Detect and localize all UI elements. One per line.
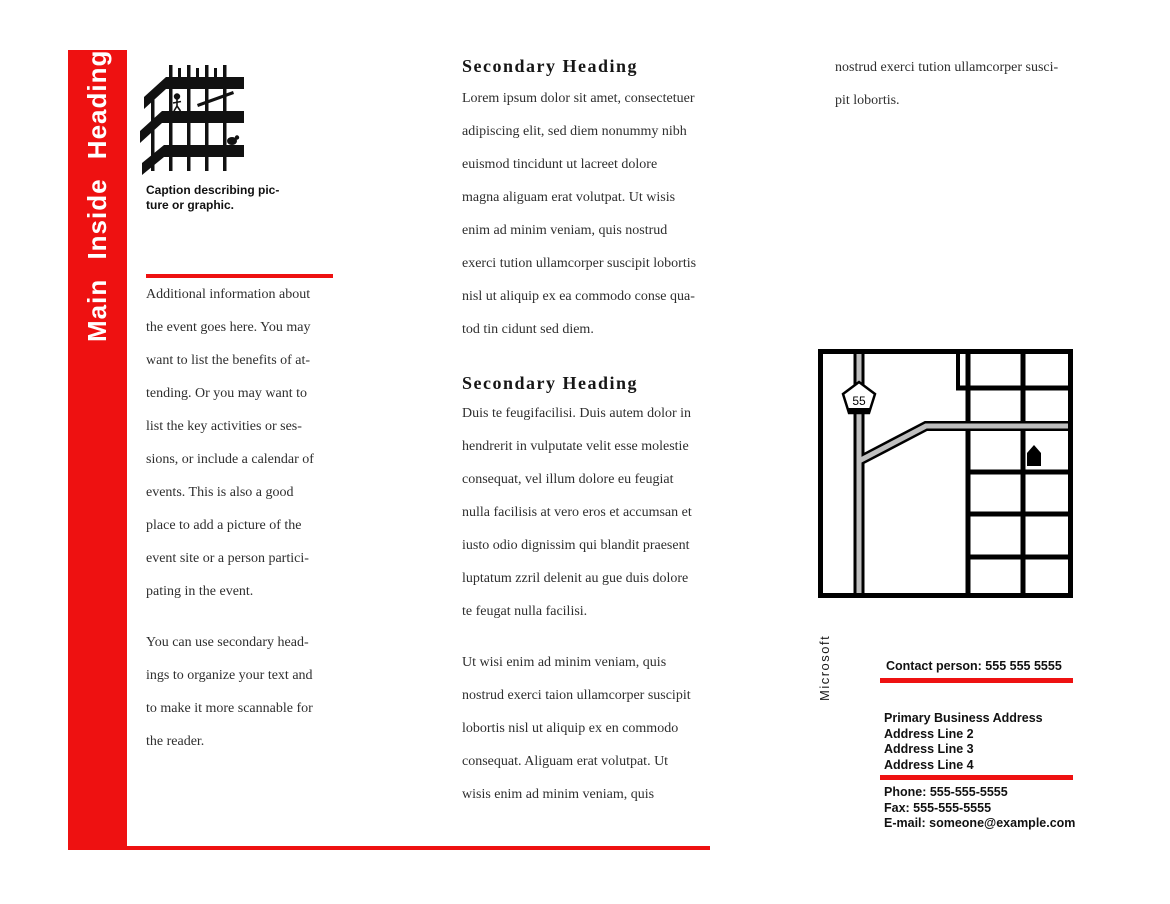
contact-person-line: Contact person: 555 555 5555 (886, 659, 1062, 675)
phone-line: Phone: 555-555-5555 (884, 785, 1075, 801)
microsoft-watermark: Microsoft (817, 635, 832, 701)
secondary-note-paragraph: You can use secondary head- ings to orga… (146, 626, 313, 758)
phone-block: Phone: 555-555-5555 Fax: 555-555-5555 E-… (884, 785, 1075, 832)
secondary-heading-1: Secondary Heading (462, 56, 638, 77)
main-inside-heading: Main Inside Heading (82, 50, 113, 342)
street-grid (956, 354, 1068, 593)
clipart-caption: Caption describing pic- ture or graphic. (146, 183, 279, 212)
location-map: 55 (818, 349, 1073, 598)
brochure-page: Main Inside Heading (0, 0, 1170, 904)
additional-info-paragraph: Additional information about the event g… (146, 278, 314, 608)
email-line: E-mail: someone@example.com (884, 816, 1075, 832)
contact-rule-bottom (880, 775, 1073, 780)
route-55-label: 55 (852, 394, 866, 408)
lorem-paragraph-3: Ut wisi enim ad minim veniam, quis nostr… (462, 646, 691, 811)
continued-paragraph: nostrud exerci tution ullamcorper susci-… (835, 51, 1058, 117)
fax-line: Fax: 555-555-5555 (884, 801, 1075, 817)
scaffolding-clipart-icon (140, 63, 252, 175)
lorem-paragraph-2: Duis te feugifacilisi. Duis autem dolor … (462, 397, 692, 628)
address-block: Primary Business Address Address Line 2 … (884, 711, 1043, 773)
contact-rule-top (880, 678, 1073, 683)
bottom-accent-rule (127, 846, 710, 850)
secondary-heading-2: Secondary Heading (462, 373, 638, 394)
lorem-paragraph-1: Lorem ipsum dolor sit amet, consectetuer… (462, 82, 696, 346)
